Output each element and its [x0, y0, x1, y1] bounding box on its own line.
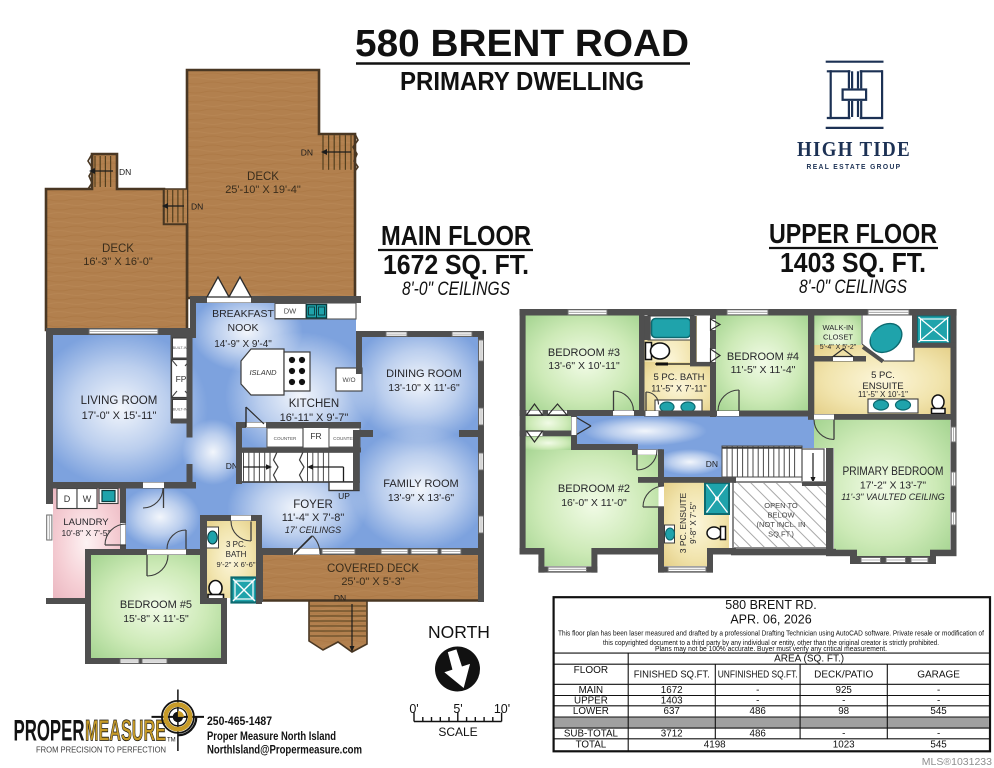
svg-text:0': 0' — [409, 702, 418, 716]
svg-text:DINING ROOM: DINING ROOM — [386, 368, 462, 380]
svg-text:1672 SQ. FT.: 1672 SQ. FT. — [383, 249, 529, 280]
svg-text:REAL ESTATE GROUP: REAL ESTATE GROUP — [807, 162, 902, 171]
svg-text:UPPER: UPPER — [574, 696, 608, 707]
svg-text:9'-8" X 7'-5": 9'-8" X 7'-5" — [689, 502, 698, 544]
svg-text:25'-10" X 19'-4": 25'-10" X 19'-4" — [225, 184, 301, 196]
svg-text:11'-5" X 11'-4": 11'-5" X 11'-4" — [731, 364, 796, 376]
svg-text:TOTAL: TOTAL — [576, 740, 607, 751]
svg-text:UPPER FLOOR: UPPER FLOOR — [769, 218, 937, 249]
svg-text:This floor plan has been laser: This floor plan has been laser measured … — [558, 629, 985, 638]
svg-text:5'-4" X 5'-2": 5'-4" X 5'-2" — [820, 344, 857, 351]
svg-text:FR: FR — [310, 431, 321, 441]
svg-text:BELOW: BELOW — [767, 511, 795, 520]
svg-text:5': 5' — [453, 702, 462, 716]
svg-text:486: 486 — [750, 729, 767, 740]
svg-text:637: 637 — [664, 706, 680, 717]
svg-text:LIVING ROOM: LIVING ROOM — [81, 395, 158, 407]
svg-text:11'-3" VAULTED CEILING: 11'-3" VAULTED CEILING — [841, 492, 945, 502]
svg-text:(NOT INCL. IN: (NOT INCL. IN — [756, 520, 805, 529]
svg-text:FLOOR: FLOOR — [574, 665, 608, 676]
svg-text:D: D — [64, 494, 71, 504]
svg-text:5 PC.: 5 PC. — [871, 370, 895, 381]
svg-text:3 PC. ENSUITE: 3 PC. ENSUITE — [678, 492, 688, 553]
svg-text:BEDROOM #4: BEDROOM #4 — [727, 351, 799, 363]
svg-text:-: - — [756, 685, 759, 696]
svg-text:98: 98 — [838, 706, 849, 717]
svg-text:13'-10" X 11'-6": 13'-10" X 11'-6" — [388, 382, 460, 394]
svg-text:PRIMARY BEDROOM: PRIMARY BEDROOM — [843, 466, 944, 478]
svg-text:APR. 06, 2026: APR. 06, 2026 — [730, 613, 811, 627]
svg-text:11'-4" X 7'-8": 11'-4" X 7'-8" — [282, 512, 345, 524]
svg-text:1403: 1403 — [661, 696, 683, 707]
svg-text:Proper Measure North Island: Proper Measure North Island — [207, 731, 336, 743]
svg-text:16'-11" X 9'-7": 16'-11" X 9'-7" — [280, 412, 349, 424]
svg-text:4198: 4198 — [704, 740, 726, 751]
svg-text:250-465-1487: 250-465-1487 — [207, 716, 272, 728]
svg-text:BEDROOM #3: BEDROOM #3 — [548, 347, 620, 359]
svg-text:BUILT-IN: BUILT-IN — [173, 346, 188, 350]
svg-text:580 BRENT ROAD: 580 BRENT ROAD — [355, 23, 689, 65]
svg-text:FOYER: FOYER — [293, 499, 333, 511]
svg-text:DECK: DECK — [102, 243, 134, 255]
svg-text:OPEN TO: OPEN TO — [764, 501, 798, 510]
svg-text:25'-0" X 5'-3": 25'-0" X 5'-3" — [341, 576, 404, 588]
svg-text:DN: DN — [119, 167, 131, 177]
svg-text:W/O: W/O — [343, 377, 356, 384]
svg-text:15'-8" X 11'-5": 15'-8" X 11'-5" — [123, 613, 189, 625]
svg-text:-: - — [937, 685, 940, 696]
svg-text:1403 SQ. FT.: 1403 SQ. FT. — [780, 247, 926, 278]
svg-text:FROM PRECISION TO PERFECTION: FROM PRECISION TO PERFECTION — [36, 745, 166, 755]
svg-text:FAMILY ROOM: FAMILY ROOM — [383, 478, 458, 490]
svg-text:COUNTER: COUNTER — [274, 436, 297, 441]
svg-text:MEASURE: MEASURE — [85, 715, 166, 748]
svg-text:8'-0" CEILINGS: 8'-0" CEILINGS — [402, 279, 510, 300]
svg-text:580 BRENT RD.: 580 BRENT RD. — [725, 598, 816, 612]
svg-text:MAIN FLOOR: MAIN FLOOR — [381, 220, 531, 251]
svg-text:17'-2" X 13'-7": 17'-2" X 13'-7" — [860, 480, 927, 492]
svg-text:10'-8" X 7'-5": 10'-8" X 7'-5" — [62, 528, 111, 538]
svg-text:1023: 1023 — [833, 740, 855, 751]
svg-text:13'-9" X 13'-6": 13'-9" X 13'-6" — [388, 492, 455, 504]
svg-text:HIGH TIDE: HIGH TIDE — [797, 137, 911, 161]
svg-text:Plans may not be 100% accurate: Plans may not be 100% accurate. Buyer mu… — [655, 644, 887, 653]
svg-text:-: - — [756, 696, 759, 707]
svg-text:LOWER: LOWER — [573, 706, 609, 717]
svg-text:NOOK: NOOK — [228, 322, 259, 334]
svg-text:10': 10' — [494, 702, 510, 716]
svg-text:-: - — [842, 696, 845, 707]
svg-text:W: W — [83, 494, 92, 504]
svg-text:DN: DN — [301, 148, 313, 158]
svg-text:LAUNDRY: LAUNDRY — [63, 517, 109, 528]
svg-text:11'-5" X 10'-1": 11'-5" X 10'-1" — [858, 390, 908, 399]
svg-text:FP: FP — [176, 374, 187, 384]
svg-text:BEDROOM #2: BEDROOM #2 — [558, 483, 630, 495]
svg-text:SQ.FT.): SQ.FT.) — [768, 530, 794, 539]
svg-text:GARAGE: GARAGE — [917, 670, 960, 681]
svg-text:545: 545 — [930, 706, 947, 717]
svg-text:TM: TM — [167, 738, 176, 744]
svg-text:486: 486 — [750, 706, 767, 717]
svg-text:UNFINISHED SQ.FT.: UNFINISHED SQ.FT. — [718, 670, 798, 681]
svg-text:-: - — [842, 729, 845, 740]
svg-text:16'-0" X 11'-0": 16'-0" X 11'-0" — [561, 497, 627, 509]
svg-text:1672: 1672 — [661, 685, 683, 696]
svg-text:925: 925 — [836, 685, 853, 696]
svg-text:MLS®1031233: MLS®1031233 — [922, 756, 992, 768]
svg-text:DN: DN — [191, 202, 203, 212]
svg-text:WALK-IN: WALK-IN — [823, 323, 854, 332]
svg-text:PROPER: PROPER — [14, 715, 85, 748]
svg-text:14'-9" X 9'-4": 14'-9" X 9'-4" — [214, 339, 272, 350]
svg-text:BEDROOM #5: BEDROOM #5 — [120, 599, 192, 611]
svg-text:NorthIsland@Propermeasure.com: NorthIsland@Propermeasure.com — [207, 745, 362, 757]
svg-text:DN: DN — [706, 459, 718, 469]
svg-text:DECK/PATIO: DECK/PATIO — [814, 670, 873, 681]
svg-text:9'-2" X 6'-6": 9'-2" X 6'-6" — [216, 560, 255, 569]
svg-text:545: 545 — [930, 740, 947, 751]
svg-text:13'-6" X 10'-11": 13'-6" X 10'-11" — [548, 360, 620, 372]
svg-text:AREA (SQ. FT.): AREA (SQ. FT.) — [774, 654, 844, 665]
svg-text:-: - — [937, 696, 940, 707]
svg-text:SUB-TOTAL: SUB-TOTAL — [564, 729, 619, 740]
svg-text:BREAKFAST: BREAKFAST — [212, 308, 274, 320]
svg-text:DW: DW — [284, 307, 297, 316]
svg-text:UP: UP — [338, 491, 350, 501]
svg-text:17' CEILINGS: 17' CEILINGS — [285, 525, 341, 535]
svg-text:17'-0" X 15'-11": 17'-0" X 15'-11" — [82, 410, 157, 422]
svg-text:FINISHED SQ.FT.: FINISHED SQ.FT. — [634, 670, 710, 681]
svg-text:8'-0" CEILINGS: 8'-0" CEILINGS — [799, 277, 907, 298]
svg-text:16'-3" X 16'-0": 16'-3" X 16'-0" — [83, 256, 153, 268]
svg-text:SCALE: SCALE — [438, 725, 477, 739]
svg-text:BATH: BATH — [226, 550, 247, 559]
svg-text:PRIMARY DWELLING: PRIMARY DWELLING — [400, 66, 644, 96]
svg-text:MAIN: MAIN — [579, 685, 604, 696]
svg-text:COVERED DECK: COVERED DECK — [327, 563, 419, 575]
svg-text:ISLAND: ISLAND — [249, 368, 277, 377]
svg-text:3712: 3712 — [661, 729, 683, 740]
svg-text:DECK: DECK — [247, 171, 279, 183]
svg-text:11'-5" X 7'-11": 11'-5" X 7'-11" — [651, 384, 707, 394]
svg-text:5 PC. BATH: 5 PC. BATH — [653, 372, 704, 383]
svg-text:CLOSET: CLOSET — [823, 333, 853, 342]
svg-text:KITCHEN: KITCHEN — [289, 398, 339, 410]
svg-text:3 PC.: 3 PC. — [226, 540, 246, 549]
svg-text:-: - — [937, 729, 940, 740]
svg-text:BUILT-IN: BUILT-IN — [173, 408, 188, 412]
svg-text:NORTH: NORTH — [428, 622, 490, 642]
